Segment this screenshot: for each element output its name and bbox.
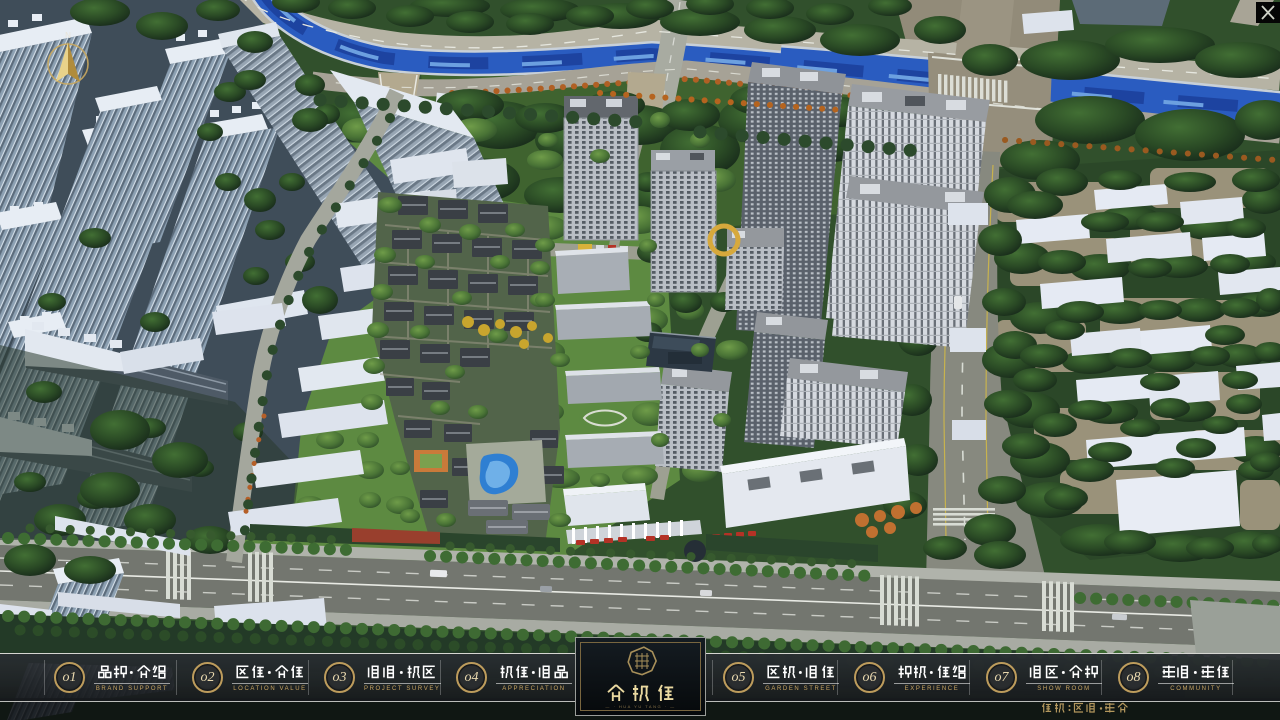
svg-text:N: N: [65, 31, 71, 40]
